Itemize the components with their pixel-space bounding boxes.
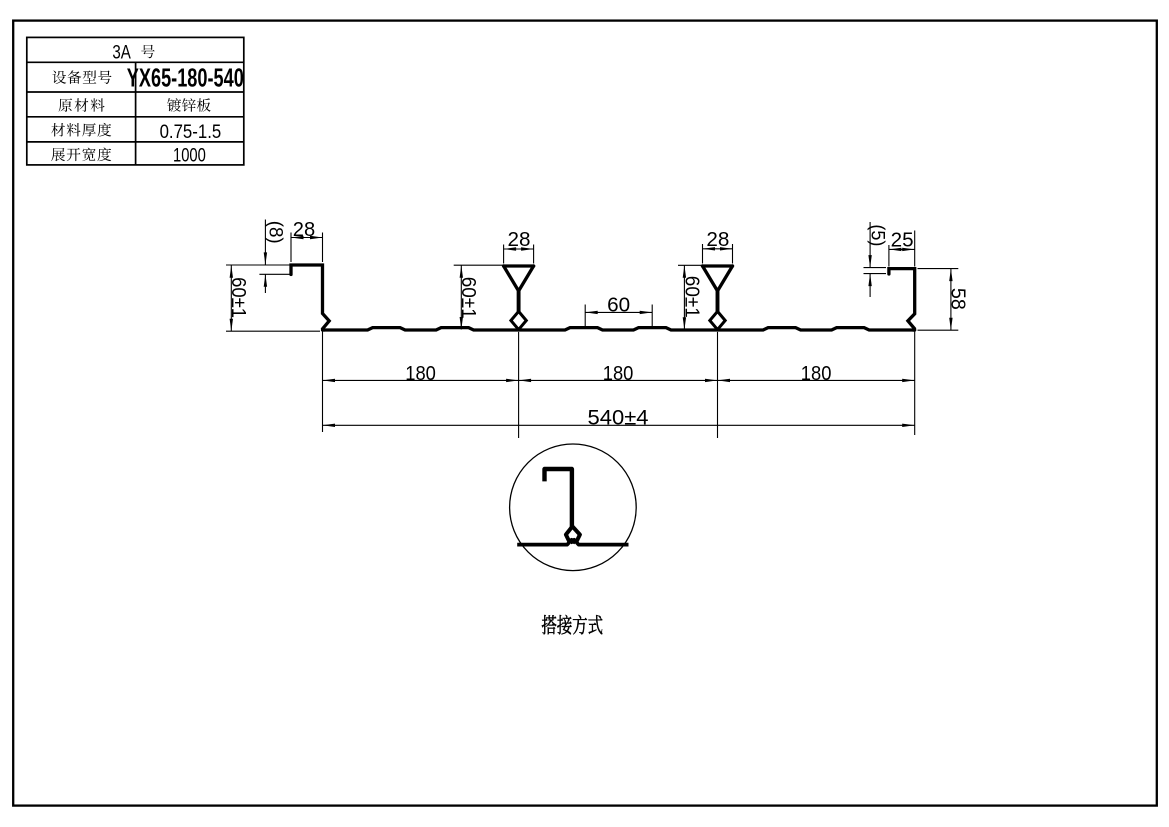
svg-text:0.75-1.5: 0.75-1.5 — [160, 121, 222, 143]
svg-text:180: 180 — [405, 363, 436, 385]
svg-text:180: 180 — [801, 363, 832, 385]
svg-text:60±1: 60±1 — [227, 277, 249, 318]
svg-text:1000: 1000 — [173, 144, 206, 166]
svg-text:25: 25 — [891, 229, 914, 251]
svg-text:60±1: 60±1 — [457, 277, 479, 319]
svg-text:28: 28 — [706, 229, 729, 251]
svg-text:540±4: 540±4 — [588, 407, 649, 430]
svg-text:180: 180 — [603, 363, 634, 385]
svg-text:60±1: 60±1 — [680, 276, 702, 318]
svg-text:3A: 3A — [112, 41, 131, 63]
svg-text:(5): (5) — [867, 224, 888, 246]
svg-text:YX65-180-540: YX65-180-540 — [127, 65, 244, 93]
svg-text:28: 28 — [508, 229, 531, 251]
svg-text:(8): (8) — [265, 221, 286, 244]
svg-text:58: 58 — [947, 288, 969, 310]
svg-text:60: 60 — [607, 295, 630, 317]
svg-text:28: 28 — [293, 219, 315, 241]
